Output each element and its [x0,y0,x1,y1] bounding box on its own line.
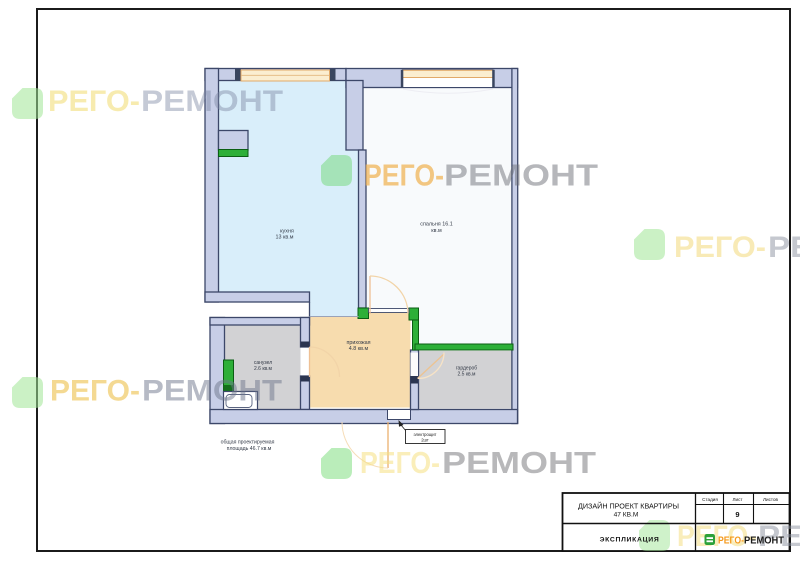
svg-text:Стадия: Стадия [702,497,718,502]
svg-text:общая проектируемая: общая проектируемая [221,440,275,446]
svg-text:РЕГО-: РЕГО- [50,375,140,408]
svg-text:2шт: 2шт [421,438,429,443]
svg-text:площадь 46.7 кв.м: площадь 46.7 кв.м [227,446,272,452]
svg-text:ДИЗАЙН ПРОЕКТ КВАРТИРЫ: ДИЗАЙН ПРОЕКТ КВАРТИРЫ [578,502,679,511]
svg-text:РЕГО-: РЕГО- [718,535,744,547]
svg-text:РЕМОНТ: РЕМОНТ [768,231,800,264]
svg-text:2.5 кв.м: 2.5 кв.м [457,372,476,378]
svg-text:2.6 кв.м: 2.6 кв.м [254,366,273,372]
svg-text:РЕМОНТ: РЕМОНТ [141,85,283,118]
svg-text:кв.м: кв.м [431,228,442,234]
svg-text:РЕГО-: РЕГО- [360,445,440,480]
svg-text:электрощит: электрощит [414,432,437,437]
svg-text:спальня 16.1: спальня 16.1 [420,222,452,228]
svg-text:13 кв.м: 13 кв.м [276,235,294,241]
svg-text:РЕГО-: РЕГО- [48,85,140,118]
svg-text:4.8 кв.м: 4.8 кв.м [349,346,369,352]
svg-text:РЕМОНТ: РЕМОНТ [744,535,785,547]
svg-text:РЕМОНТ: РЕМОНТ [142,375,282,408]
svg-text:ЭКСПЛИКАЦИЯ: ЭКСПЛИКАЦИЯ [600,537,660,544]
svg-text:Листов: Листов [763,497,778,502]
svg-text:РЕГО-: РЕГО- [674,231,766,264]
svg-text:РЕМОНТ: РЕМОНТ [442,445,596,480]
svg-text:47 КВ.М: 47 КВ.М [614,512,639,519]
svg-text:РЕМОНТ: РЕМОНТ [444,158,598,193]
svg-text:9: 9 [735,510,739,519]
svg-text:РЕГО-: РЕГО- [364,158,444,193]
svg-text:Лист: Лист [733,497,744,502]
